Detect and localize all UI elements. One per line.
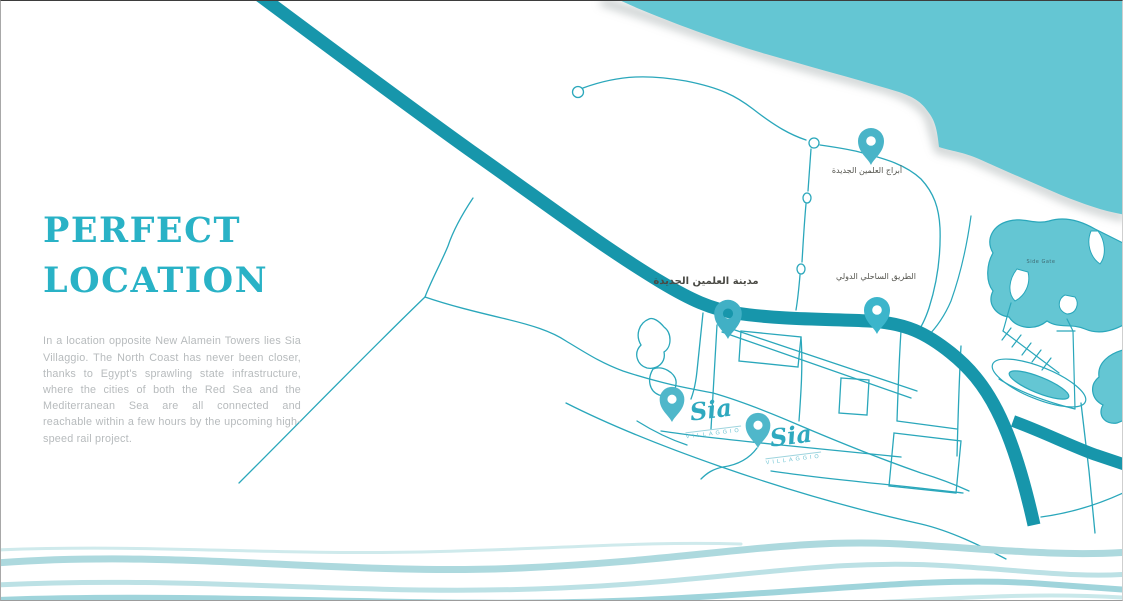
location-map-slide: PERFECT LOCATION In a location opposite … xyxy=(0,0,1123,601)
label-new-alamein-towers: أبراج العلمين الجديدة xyxy=(832,166,902,175)
sea xyxy=(599,1,1123,215)
page-title: PERFECT LOCATION xyxy=(43,206,313,305)
intro-paragraph: In a location opposite New Alamein Tower… xyxy=(43,333,301,446)
intro-block: PERFECT LOCATION In a location opposite … xyxy=(43,206,313,447)
page-title-line1: PERFECT xyxy=(43,206,313,256)
label-international-coastal-road: الطريق الساحلي الدولي xyxy=(836,272,916,281)
shore-waves xyxy=(1,543,1123,601)
pin-new-alamein-towers xyxy=(858,128,884,165)
lake-label: Side Gate xyxy=(1027,259,1056,265)
label-new-alamein-city: مدينة العلمين الجديدة xyxy=(653,276,758,287)
pin-new-alamein-city xyxy=(714,300,742,339)
page-title-line2: LOCATION xyxy=(43,256,313,306)
